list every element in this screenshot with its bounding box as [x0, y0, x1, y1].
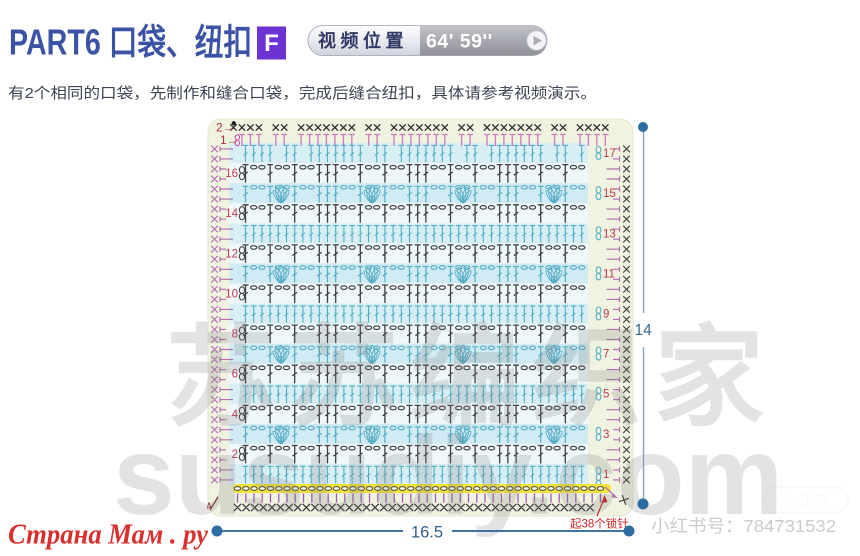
- svg-text:PART6 口袋、纽扣: PART6 口袋、纽扣: [9, 22, 252, 63]
- svg-text:15: 15: [603, 188, 616, 200]
- svg-text:11: 11: [603, 268, 615, 280]
- svg-text:视频位置: 视频位置: [318, 30, 408, 51]
- svg-text:小红书: 小红书: [782, 492, 827, 509]
- svg-text:有2个相同的口袋，先制作和缝合口袋，完成后缝合纽扣，具体请参: 有2个相同的口袋，先制作和缝合口袋，完成后缝合纽扣，具体请参考视频演示。: [8, 85, 597, 102]
- svg-text:16.5: 16.5: [411, 524, 443, 542]
- svg-text:12: 12: [225, 248, 238, 260]
- svg-text:64' 59'': 64' 59'': [426, 31, 493, 53]
- svg-text:rednote: rednote: [760, 515, 811, 532]
- svg-text:10: 10: [225, 288, 238, 300]
- svg-text:13: 13: [603, 228, 616, 240]
- svg-text:Страна Мам . ру: Страна Мам . ру: [8, 519, 208, 551]
- svg-text:14: 14: [225, 208, 238, 220]
- svg-text:1→: 1→: [220, 133, 239, 147]
- svg-text:F: F: [264, 30, 279, 57]
- svg-text:14: 14: [635, 322, 653, 339]
- svg-text:16: 16: [225, 168, 238, 180]
- svg-text:17: 17: [603, 148, 616, 160]
